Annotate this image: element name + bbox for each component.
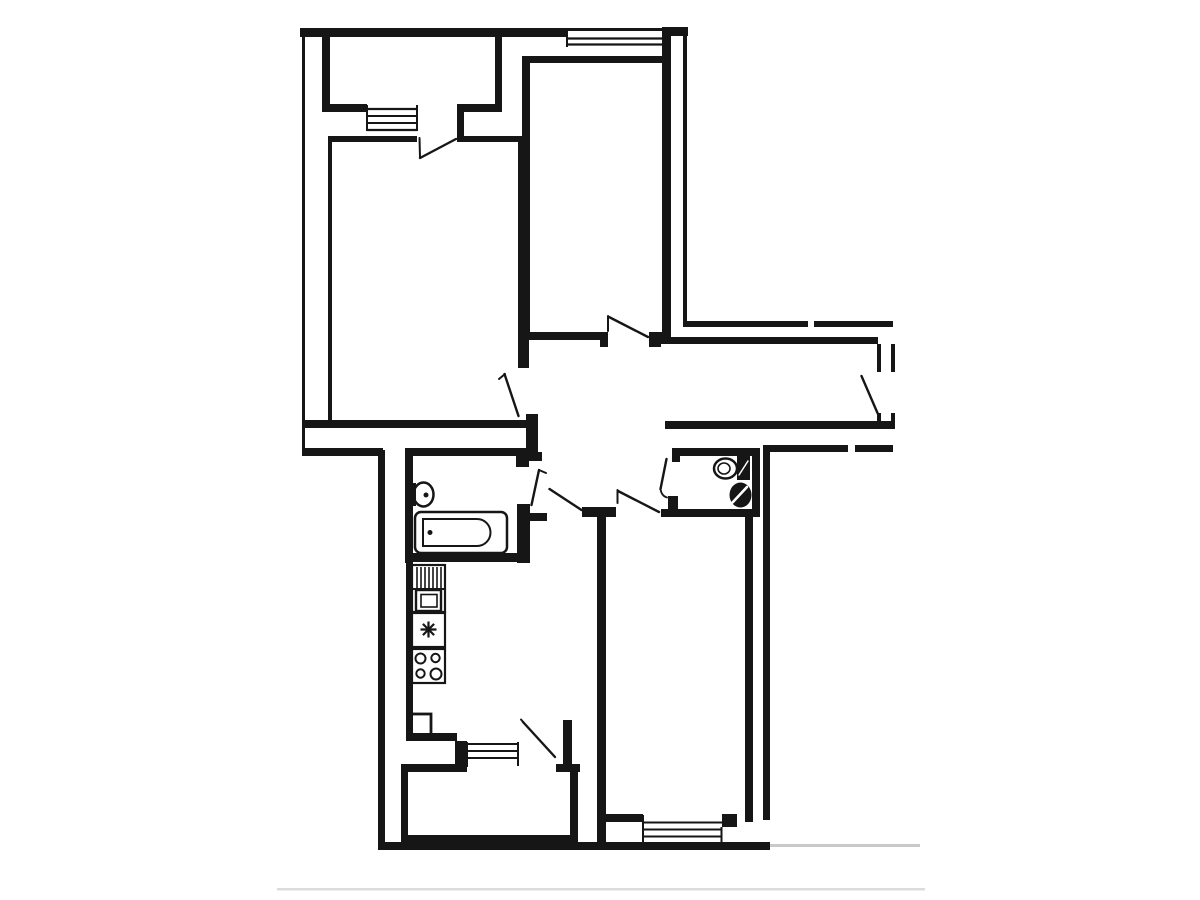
corridor-bottom-outer-face-b	[855, 445, 893, 452]
bathroom-right-wall-lower	[517, 504, 530, 563]
bathroom-top-wall	[405, 448, 524, 456]
bathtub-inner	[423, 519, 490, 546]
bedroom2-top-inner-wall	[525, 56, 667, 63]
loggia-top-window	[367, 105, 417, 131]
corridor-upper-face-a	[687, 321, 808, 327]
loggia-bottom-bottom-wall	[401, 835, 578, 843]
bathroom-basin	[412, 483, 434, 507]
floor-plan-canvas	[0, 0, 1200, 900]
door-leaf	[661, 459, 667, 489]
loggia-bottom-left-wall	[401, 764, 408, 843]
room-bathroom	[405, 448, 547, 563]
wc-right-wall	[752, 448, 760, 517]
exterior-left-jog	[302, 448, 383, 456]
bedroom3-bottom-wall-left	[601, 814, 643, 822]
bedroom-3-door	[618, 490, 660, 512]
bedroom2-outer-right-line	[683, 34, 687, 327]
wc-basin	[730, 483, 752, 508]
corridor-bottom-outer-face-a	[770, 445, 848, 452]
loggia-top-left-wall	[322, 36, 330, 112]
loggia-bottom-top-wall-left	[401, 764, 467, 772]
water-heater	[412, 613, 445, 647]
bathtub-drain	[428, 530, 433, 535]
corridor-top-wall	[661, 337, 878, 344]
bedroom3-right-wall	[745, 517, 753, 822]
floor-plan-page	[0, 0, 1200, 900]
exterior-right-lower-wall	[763, 445, 770, 820]
door-leaf	[523, 722, 555, 757]
door-leaf	[420, 139, 456, 158]
room-living-room	[303, 136, 542, 461]
bedroom3-bottom-jamb-right	[722, 814, 737, 827]
wc-door	[661, 459, 668, 498]
exterior-bottom-faint-line	[770, 844, 920, 847]
footer-divider-line	[277, 888, 925, 891]
door-swing-tick	[521, 720, 524, 724]
room-wc	[661, 448, 761, 517]
bedroom-2-door	[608, 316, 648, 337]
door-swing-tick	[420, 138, 421, 157]
room-corridor	[661, 321, 895, 452]
kitchen-door	[550, 489, 582, 510]
burner	[416, 654, 426, 664]
star-symbol	[421, 622, 437, 638]
basin-drain	[424, 493, 429, 498]
bathroom-door	[532, 470, 547, 505]
burner	[416, 669, 424, 677]
living-room-left-wall	[328, 136, 332, 424]
bathroom-bottom-wall	[405, 553, 530, 562]
bathtub	[415, 512, 507, 553]
exterior-top-wall	[300, 28, 567, 37]
stove	[412, 649, 445, 683]
door-swing-arc	[661, 489, 668, 498]
loggia-top-door	[420, 138, 457, 158]
living-room-bottom-wall	[303, 420, 528, 428]
exterior-bottom-wall	[378, 842, 770, 850]
loggia-bottom-door	[521, 720, 555, 758]
loggia-bottom-right-wall	[570, 764, 578, 843]
sink-basin-inner	[421, 595, 437, 608]
kitchen-sink	[412, 565, 445, 612]
bedroom2-bottom-wall-left	[522, 332, 601, 340]
bathroom-wall-foot	[530, 513, 547, 521]
living-room-top-wall-right	[457, 136, 520, 142]
kitchen-window	[467, 742, 518, 767]
kitchen-bedroom3-wall	[597, 517, 606, 845]
entrance-door	[862, 344, 896, 429]
burner	[431, 654, 439, 662]
entrance-jamb-top-right	[891, 344, 895, 372]
room-bedroom-3	[601, 490, 753, 842]
basin-bowl	[414, 483, 434, 507]
bedroom2-left-wall	[522, 56, 530, 340]
exterior-walls	[300, 27, 920, 850]
loggia-top-bottom-wall-left	[322, 104, 367, 112]
living-room-door	[499, 374, 519, 416]
door-leaf	[550, 489, 582, 510]
room-loggia-bottom	[401, 764, 580, 843]
room-bedroom-2	[522, 27, 687, 347]
toilet	[714, 456, 750, 480]
wc-bottom-wall	[661, 509, 760, 517]
bedroom-2-window	[567, 28, 662, 47]
bathroom-right-wall-upper	[516, 448, 529, 467]
bedroom2-door-jamb-left	[600, 332, 608, 347]
door-leaf	[618, 491, 659, 512]
bedroom-3-window	[643, 815, 722, 842]
living-room-top-wall-left	[328, 136, 417, 142]
loggia-top-right-wall	[495, 36, 502, 112]
exterior-left-line	[302, 36, 305, 451]
door-leaf	[862, 376, 878, 413]
exterior-left-lower-wall	[378, 450, 385, 848]
corridor-upper-face-b	[814, 321, 893, 327]
door-leaf	[609, 317, 648, 337]
wc-top-wall	[672, 448, 760, 456]
wc-door-jamb-top	[672, 448, 680, 462]
corridor-bottom-wall	[665, 421, 893, 429]
kitchen-wall-t-cap	[582, 507, 616, 517]
room-kitchen	[406, 489, 616, 845]
entrance-jamb-bottom-right	[891, 413, 895, 429]
burner	[431, 669, 442, 680]
door-leaf	[532, 470, 540, 505]
loggia-top-corner-wall	[457, 104, 464, 138]
toilet-bowl-inner	[718, 463, 730, 474]
bathroom-left-wall	[405, 448, 413, 563]
entrance-jamb-bottom-left	[877, 413, 881, 429]
kitchen-window-jamb-left	[455, 741, 467, 768]
entrance-jamb-top-left	[877, 344, 881, 372]
sink-drainboard-hatch	[417, 567, 441, 588]
bedroom2-right-wall	[662, 27, 671, 340]
kitchen-door-post	[563, 720, 572, 768]
door-swing-tick	[539, 470, 546, 473]
door-leaf	[505, 374, 519, 416]
